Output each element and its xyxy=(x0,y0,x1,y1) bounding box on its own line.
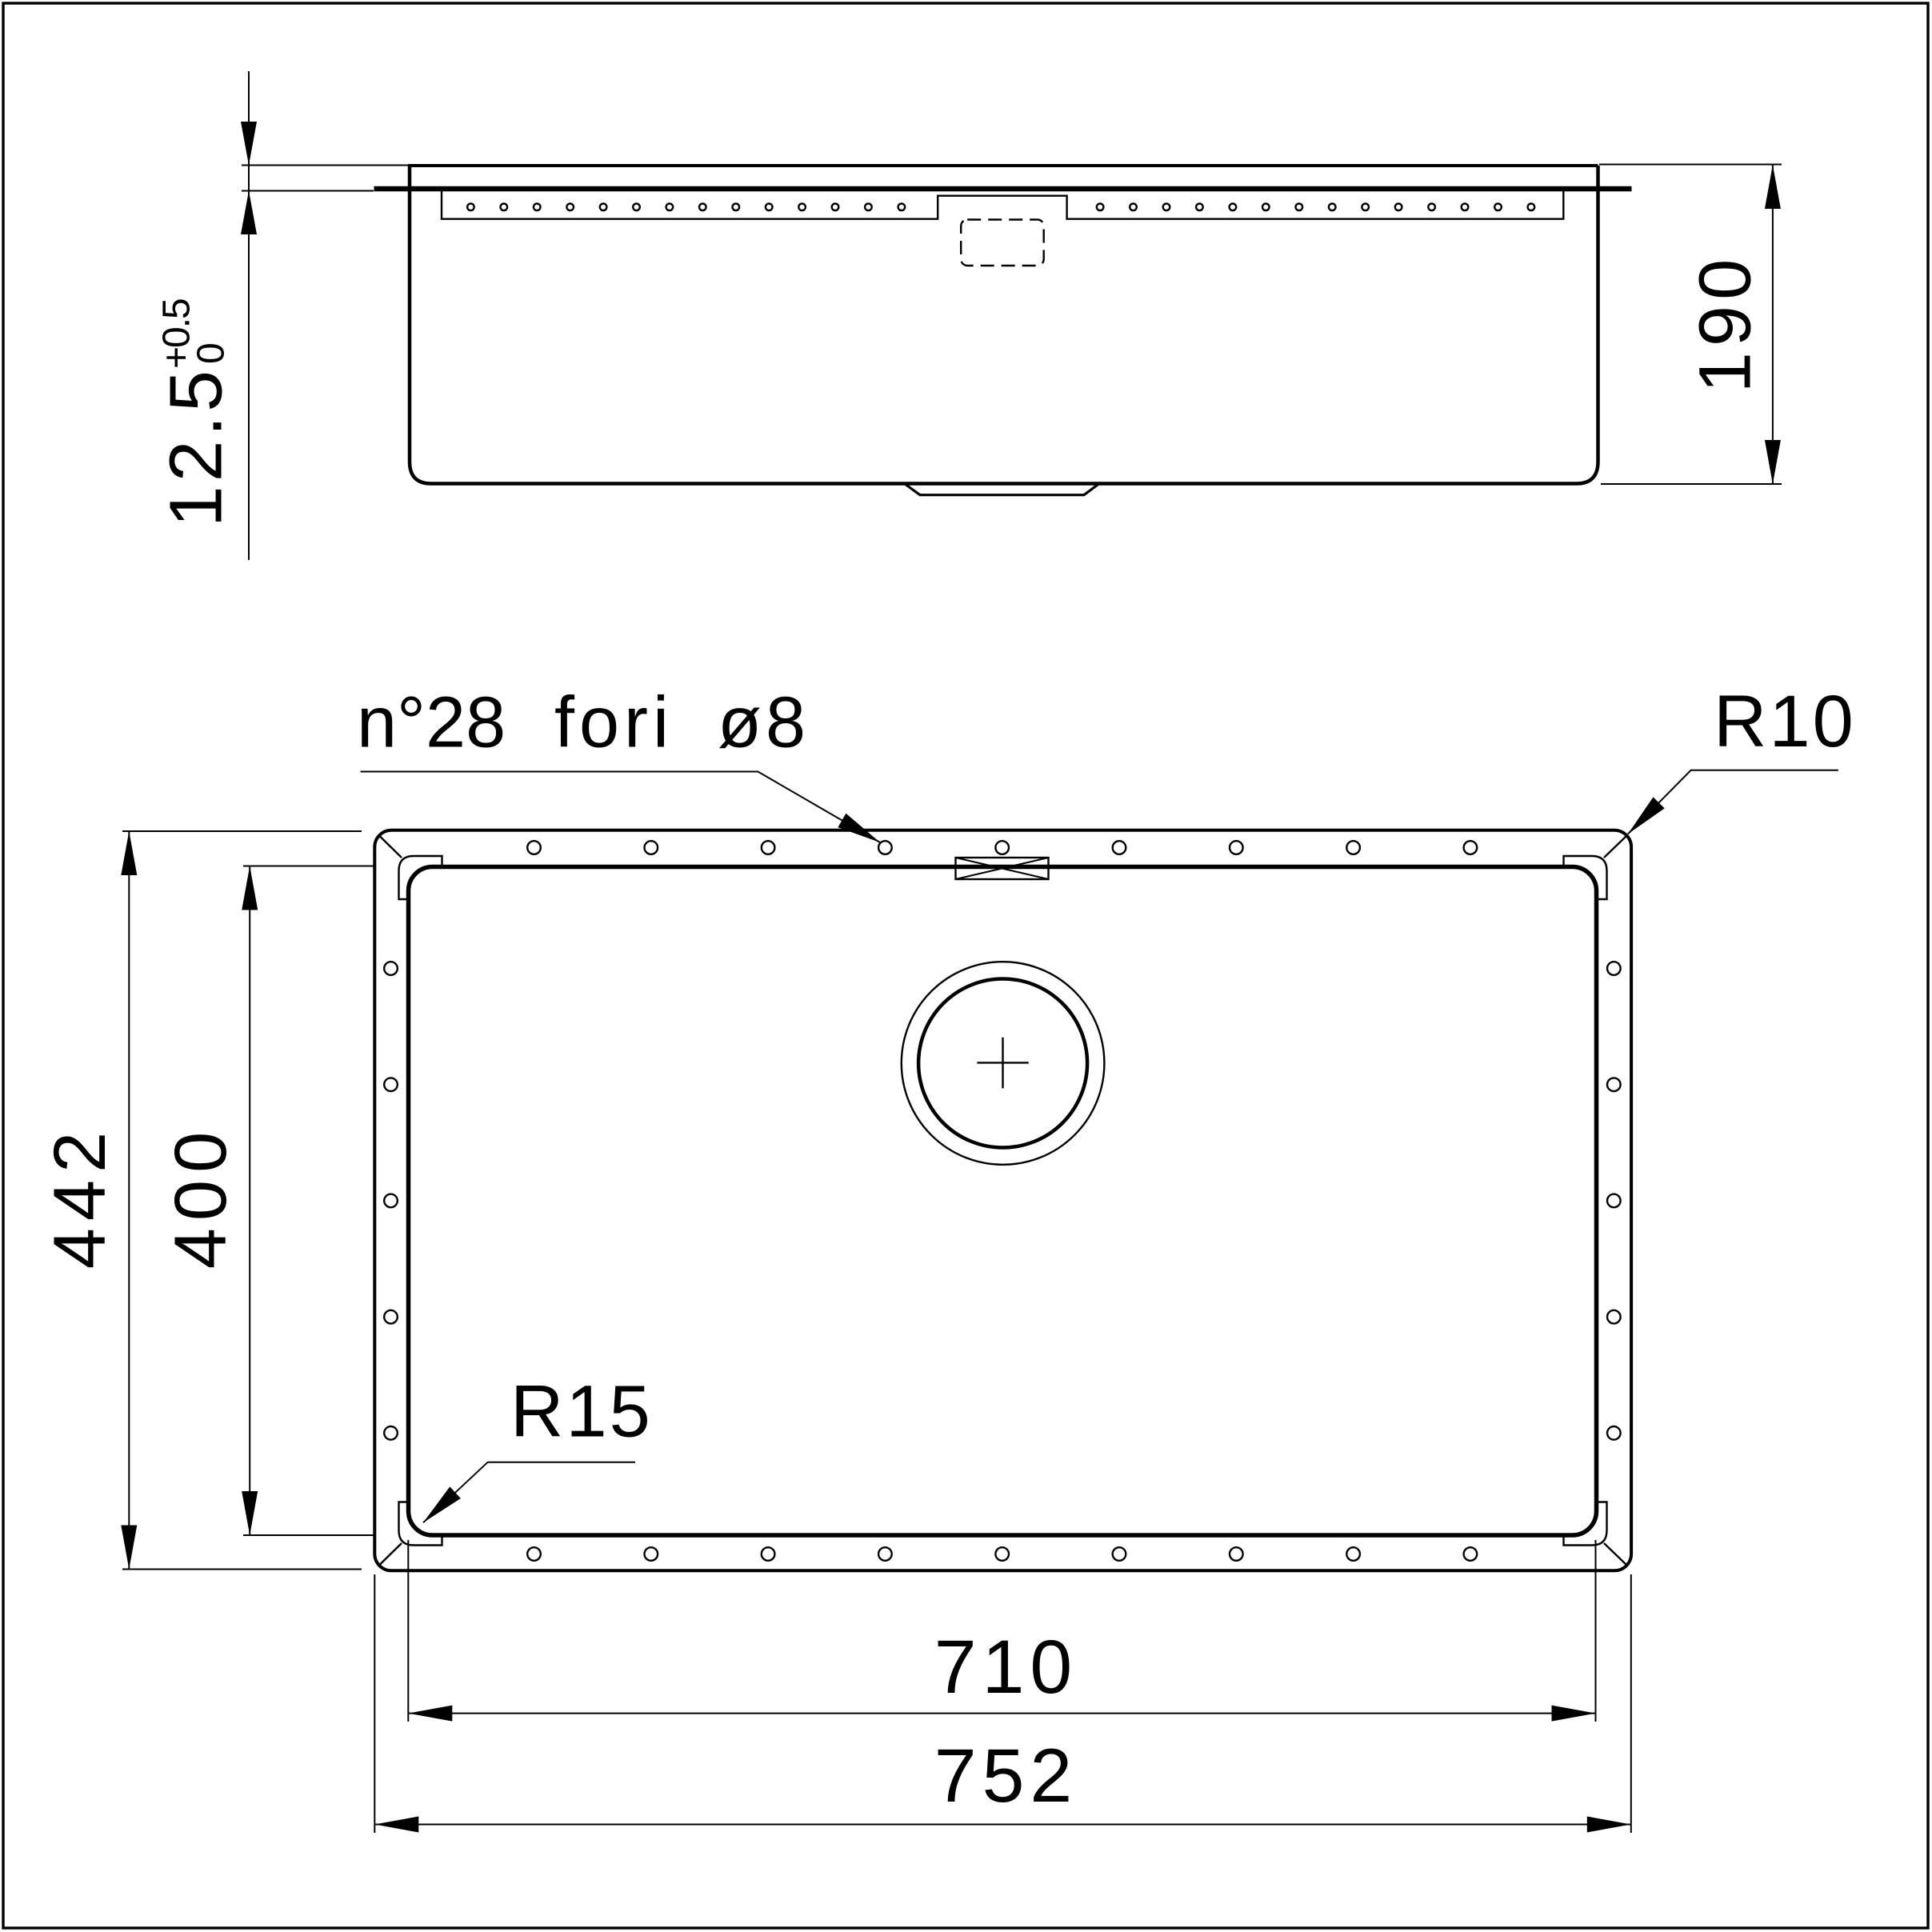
svg-text:fori: fori xyxy=(554,683,674,763)
svg-text:710: 710 xyxy=(934,1625,1078,1710)
svg-text:442: 442 xyxy=(39,1125,121,1270)
svg-text:12.5: 12.5 xyxy=(154,366,238,527)
svg-text:400: 400 xyxy=(160,1125,242,1270)
svg-text:R15: R15 xyxy=(510,1371,653,1453)
svg-text:n°28: n°28 xyxy=(357,683,506,763)
svg-text:ø8: ø8 xyxy=(718,683,810,763)
svg-text:190: 190 xyxy=(1685,254,1766,394)
svg-text:0: 0 xyxy=(190,342,233,364)
svg-text:R10: R10 xyxy=(1714,681,1856,762)
svg-text:752: 752 xyxy=(934,1734,1078,1818)
